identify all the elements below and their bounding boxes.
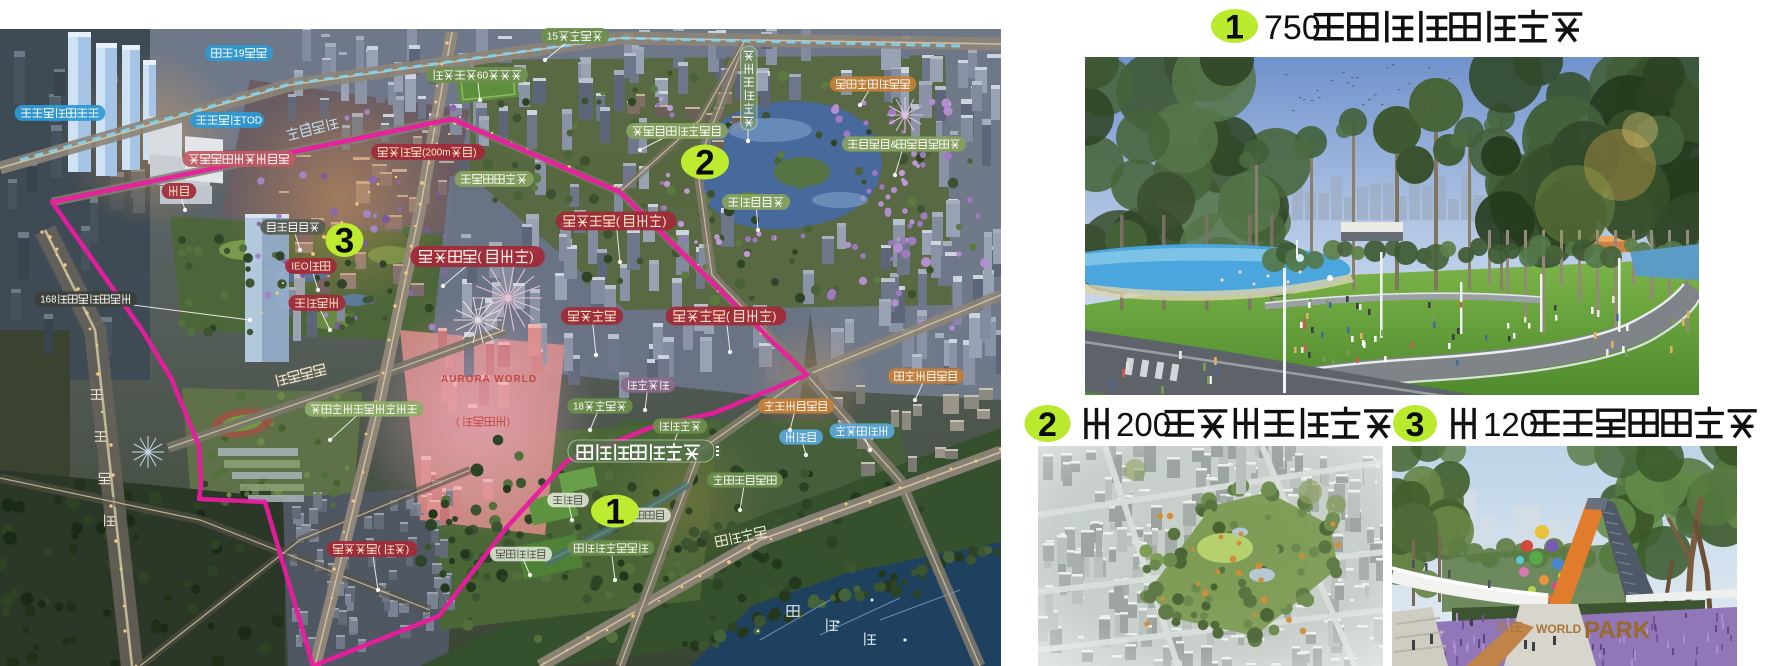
svg-text:PARK: PARK [1584,617,1651,644]
svg-text:2: 2 [695,144,714,183]
svg-text:): ) [406,545,409,556]
svg-text:3: 3 [335,222,354,261]
svg-text:): ) [662,214,666,228]
svg-text:(: ( [477,249,482,264]
svg-text:750: 750 [1264,9,1321,47]
svg-text:18: 18 [573,401,584,412]
svg-text:3: 3 [1406,406,1425,444]
svg-text:(: ( [726,309,730,323]
svg-text:): ) [529,249,533,264]
svg-text:120: 120 [1483,406,1538,443]
svg-text:WORLD: WORLD [1536,622,1582,636]
svg-text:200: 200 [1116,406,1171,443]
svg-text:): ) [473,148,476,159]
svg-text:15: 15 [547,32,559,43]
svg-text:1: 1 [605,493,624,532]
svg-text:(: ( [616,214,620,228]
svg-text:168: 168 [40,294,56,305]
svg-text:TOD: TOD [241,116,262,127]
svg-text:1: 1 [1225,9,1244,47]
svg-text:): ) [507,417,510,428]
svg-text:2: 2 [1038,406,1057,444]
svg-text:(200m: (200m [422,148,451,159]
svg-text:60: 60 [477,71,489,82]
svg-text:IEO: IEO [291,262,309,273]
svg-text:AURORA WORLD: AURORA WORLD [441,374,537,385]
svg-text:19: 19 [233,49,245,60]
svg-text:): ) [772,309,776,323]
